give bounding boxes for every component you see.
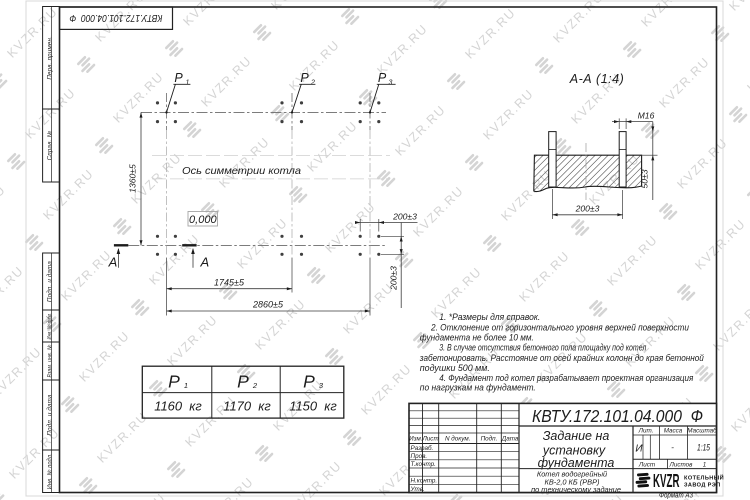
svg-text:КВТУ.172.101.04.000 Ф: КВТУ.172.101.04.000 Ф <box>69 12 162 23</box>
svg-text:1: 1 <box>184 381 188 390</box>
svg-text:1. *Размеры для справок.: 1. *Размеры для справок. <box>439 312 540 322</box>
svg-text:P: P <box>237 371 249 391</box>
svg-text:Ось симметрии котла: Ось симметрии котла <box>182 165 301 177</box>
svg-text:1160 кг: 1160 кг <box>154 400 202 414</box>
svg-text:P: P <box>303 371 315 391</box>
svg-text:200±3: 200±3 <box>575 204 600 214</box>
svg-text:Лит.: Лит. <box>638 428 654 435</box>
svg-text:Масштаб: Масштаб <box>687 427 717 435</box>
svg-text:А: А <box>199 255 209 270</box>
svg-text:200±3: 200±3 <box>392 212 417 222</box>
svg-text:M16: M16 <box>638 111 655 121</box>
svg-text:ЗАВОД РЭП: ЗАВОД РЭП <box>684 482 721 488</box>
svg-text:1: 1 <box>703 461 707 468</box>
svg-text:N докум.: N докум. <box>445 435 470 443</box>
svg-text:фундамента: фундамента <box>538 456 615 470</box>
svg-text:Инв. № подл.: Инв. № подл. <box>46 453 53 489</box>
svg-text:P: P <box>168 371 180 391</box>
svg-text:Подп. и дата: Подп. и дата <box>46 394 53 435</box>
svg-text:Разраб.: Разраб. <box>411 444 434 452</box>
svg-text:по нагрузкам на фундамент.: по нагрузкам на фундамент. <box>420 383 536 393</box>
svg-text:Листов: Листов <box>669 461 694 468</box>
svg-text:0,000: 0,000 <box>189 214 217 226</box>
svg-text:1170 кг: 1170 кг <box>223 400 271 414</box>
svg-text:Перв. примен.: Перв. примен. <box>46 36 53 80</box>
svg-text:3: 3 <box>389 80 393 87</box>
svg-text:Масса: Масса <box>664 428 683 435</box>
svg-text:4. Фундамент под котел разраба: 4. Фундамент под котел разрабатывает про… <box>439 373 693 383</box>
svg-text:Утв.: Утв. <box>410 486 425 493</box>
svg-text:Пров.: Пров. <box>411 453 428 460</box>
svg-text:50±3: 50±3 <box>640 169 650 188</box>
svg-text:KVZR: KVZR <box>653 470 680 491</box>
svg-text:Инв. № дубл.: Инв. № дубл. <box>46 313 53 340</box>
svg-text:2: 2 <box>310 80 315 87</box>
svg-text:Подп.: Подп. <box>481 435 498 443</box>
svg-text:Дата: Дата <box>501 436 519 443</box>
svg-text:P: P <box>174 71 183 85</box>
svg-text:забетонировать. Расстояние от: забетонировать. Расстояние от осей крайн… <box>419 353 704 363</box>
svg-text:А-А (1:4): А-А (1:4) <box>569 72 625 86</box>
svg-text:по техническому задание: по техническому задание <box>531 485 621 494</box>
svg-text:1360±5: 1360±5 <box>128 164 138 193</box>
svg-text:А: А <box>108 255 118 270</box>
svg-text:1150 кг: 1150 кг <box>289 400 337 414</box>
svg-text:1: 1 <box>186 80 190 87</box>
svg-text:Задание на: Задание на <box>543 429 610 443</box>
svg-text:3. В случае отсутствия бетонно: 3. В случае отсутствия бетонного пола пл… <box>439 343 646 353</box>
svg-text:Взам. инв. №: Взам. инв. № <box>46 344 53 377</box>
svg-text:2. Отклонение от горизонтально: 2. Отклонение от горизонтального уровня … <box>430 323 689 333</box>
svg-text:Т.контр.: Т.контр. <box>411 461 436 468</box>
svg-text:Подп. и дата: Подп. и дата <box>46 261 53 302</box>
svg-text:Изм.: Изм. <box>409 436 422 443</box>
svg-text:P: P <box>378 71 387 85</box>
svg-text:1745±5: 1745±5 <box>214 278 245 288</box>
svg-text:КОТЕЛЬНЫЙ: КОТЕЛЬНЫЙ <box>684 474 724 482</box>
svg-text:200±3: 200±3 <box>389 266 399 291</box>
svg-text:КВТУ.172.101.04.000 Ф: КВТУ.172.101.04.000 Ф <box>532 406 703 426</box>
svg-text:2: 2 <box>252 381 258 390</box>
svg-text:Лист: Лист <box>421 436 438 443</box>
svg-text:фундамента не более 10 мм.: фундамента не более 10 мм. <box>420 333 534 343</box>
svg-text:подушки 500 мм.: подушки 500 мм. <box>420 363 490 373</box>
svg-text:-: - <box>671 442 674 452</box>
svg-text:Н.контр.: Н.контр. <box>411 478 438 485</box>
svg-text:И: И <box>635 443 643 454</box>
svg-text:Формат А3: Формат А3 <box>659 491 693 500</box>
svg-text:2860±5: 2860±5 <box>252 299 284 309</box>
svg-text:P: P <box>300 71 309 85</box>
svg-text:1:15: 1:15 <box>697 443 710 454</box>
svg-text:Справ. №: Справ. № <box>46 131 53 161</box>
svg-text:Лист: Лист <box>638 461 655 468</box>
